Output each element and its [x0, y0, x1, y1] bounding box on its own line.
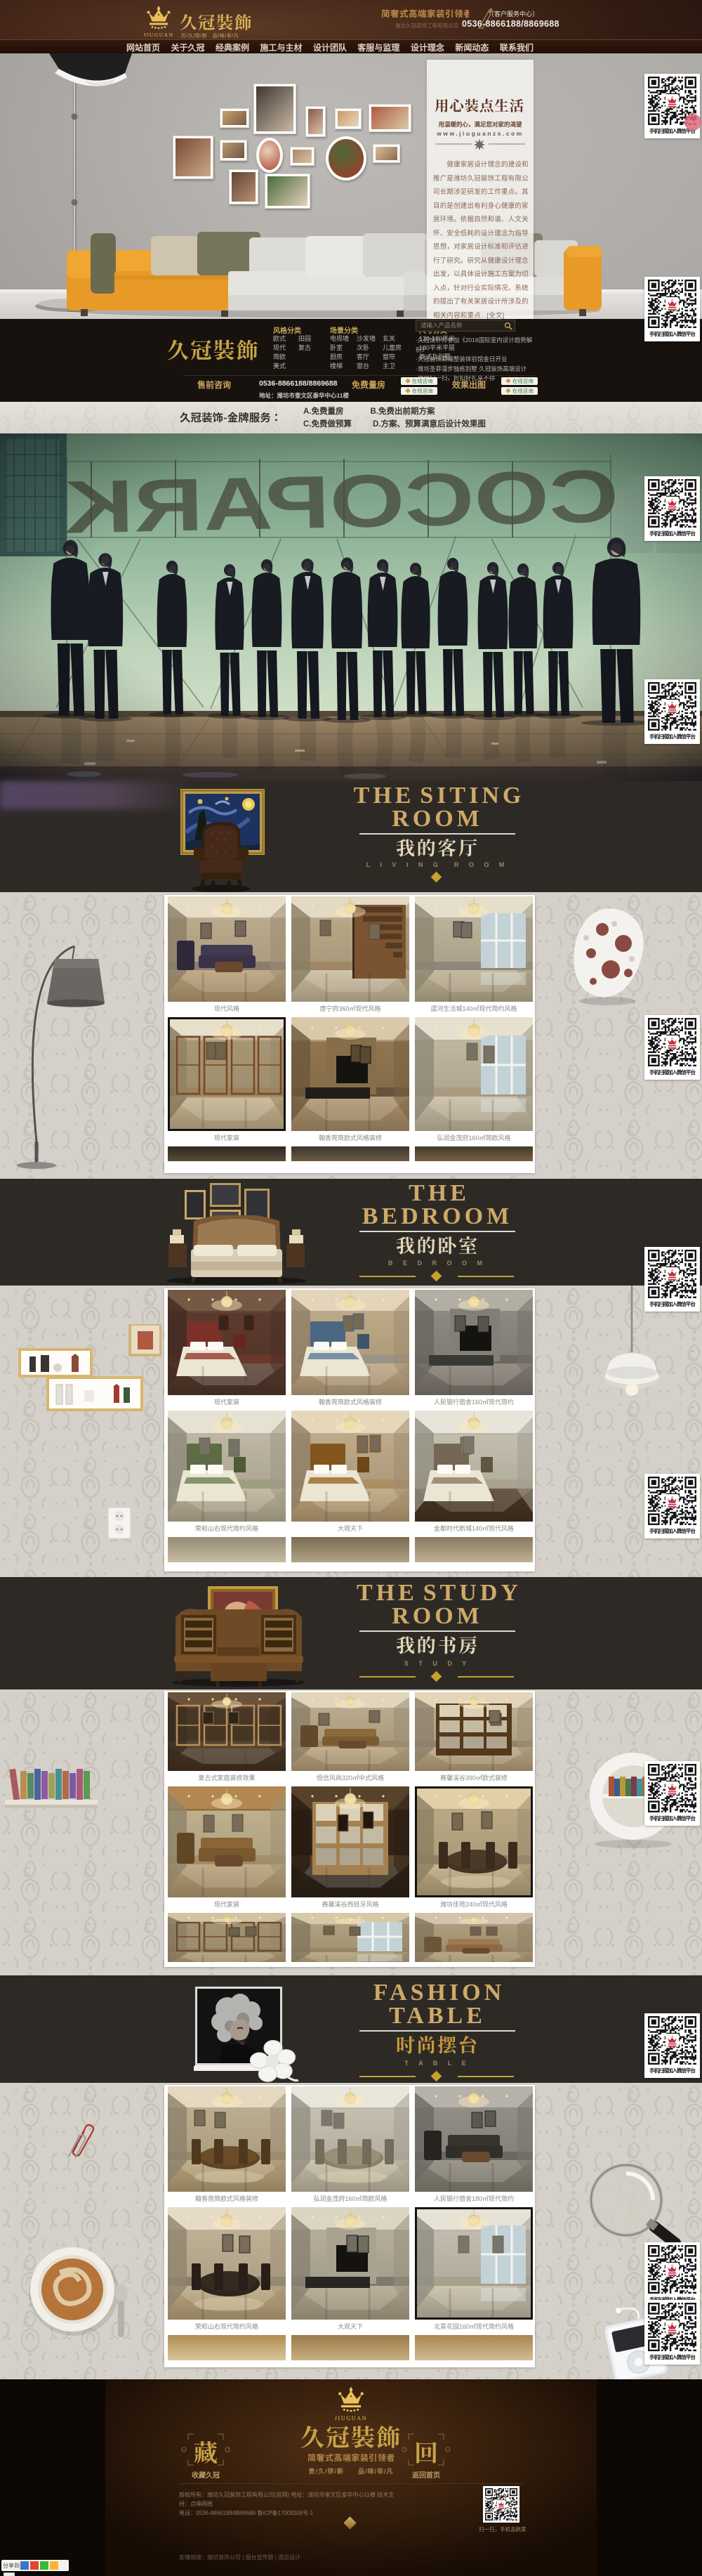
svg-text:JIUGUAN: JIUGUAN: [144, 32, 174, 38]
svg-text:JIUGUAN: JIUGUAN: [335, 2415, 368, 2421]
svg-text:历/久/弥/新 品/味/非/凡: 历/久/弥/新 品/味/非/凡: [181, 32, 239, 39]
svg-text:潍坊久冠装饰工程有限公司: 潍坊久冠装饰工程有限公司: [395, 22, 458, 29]
